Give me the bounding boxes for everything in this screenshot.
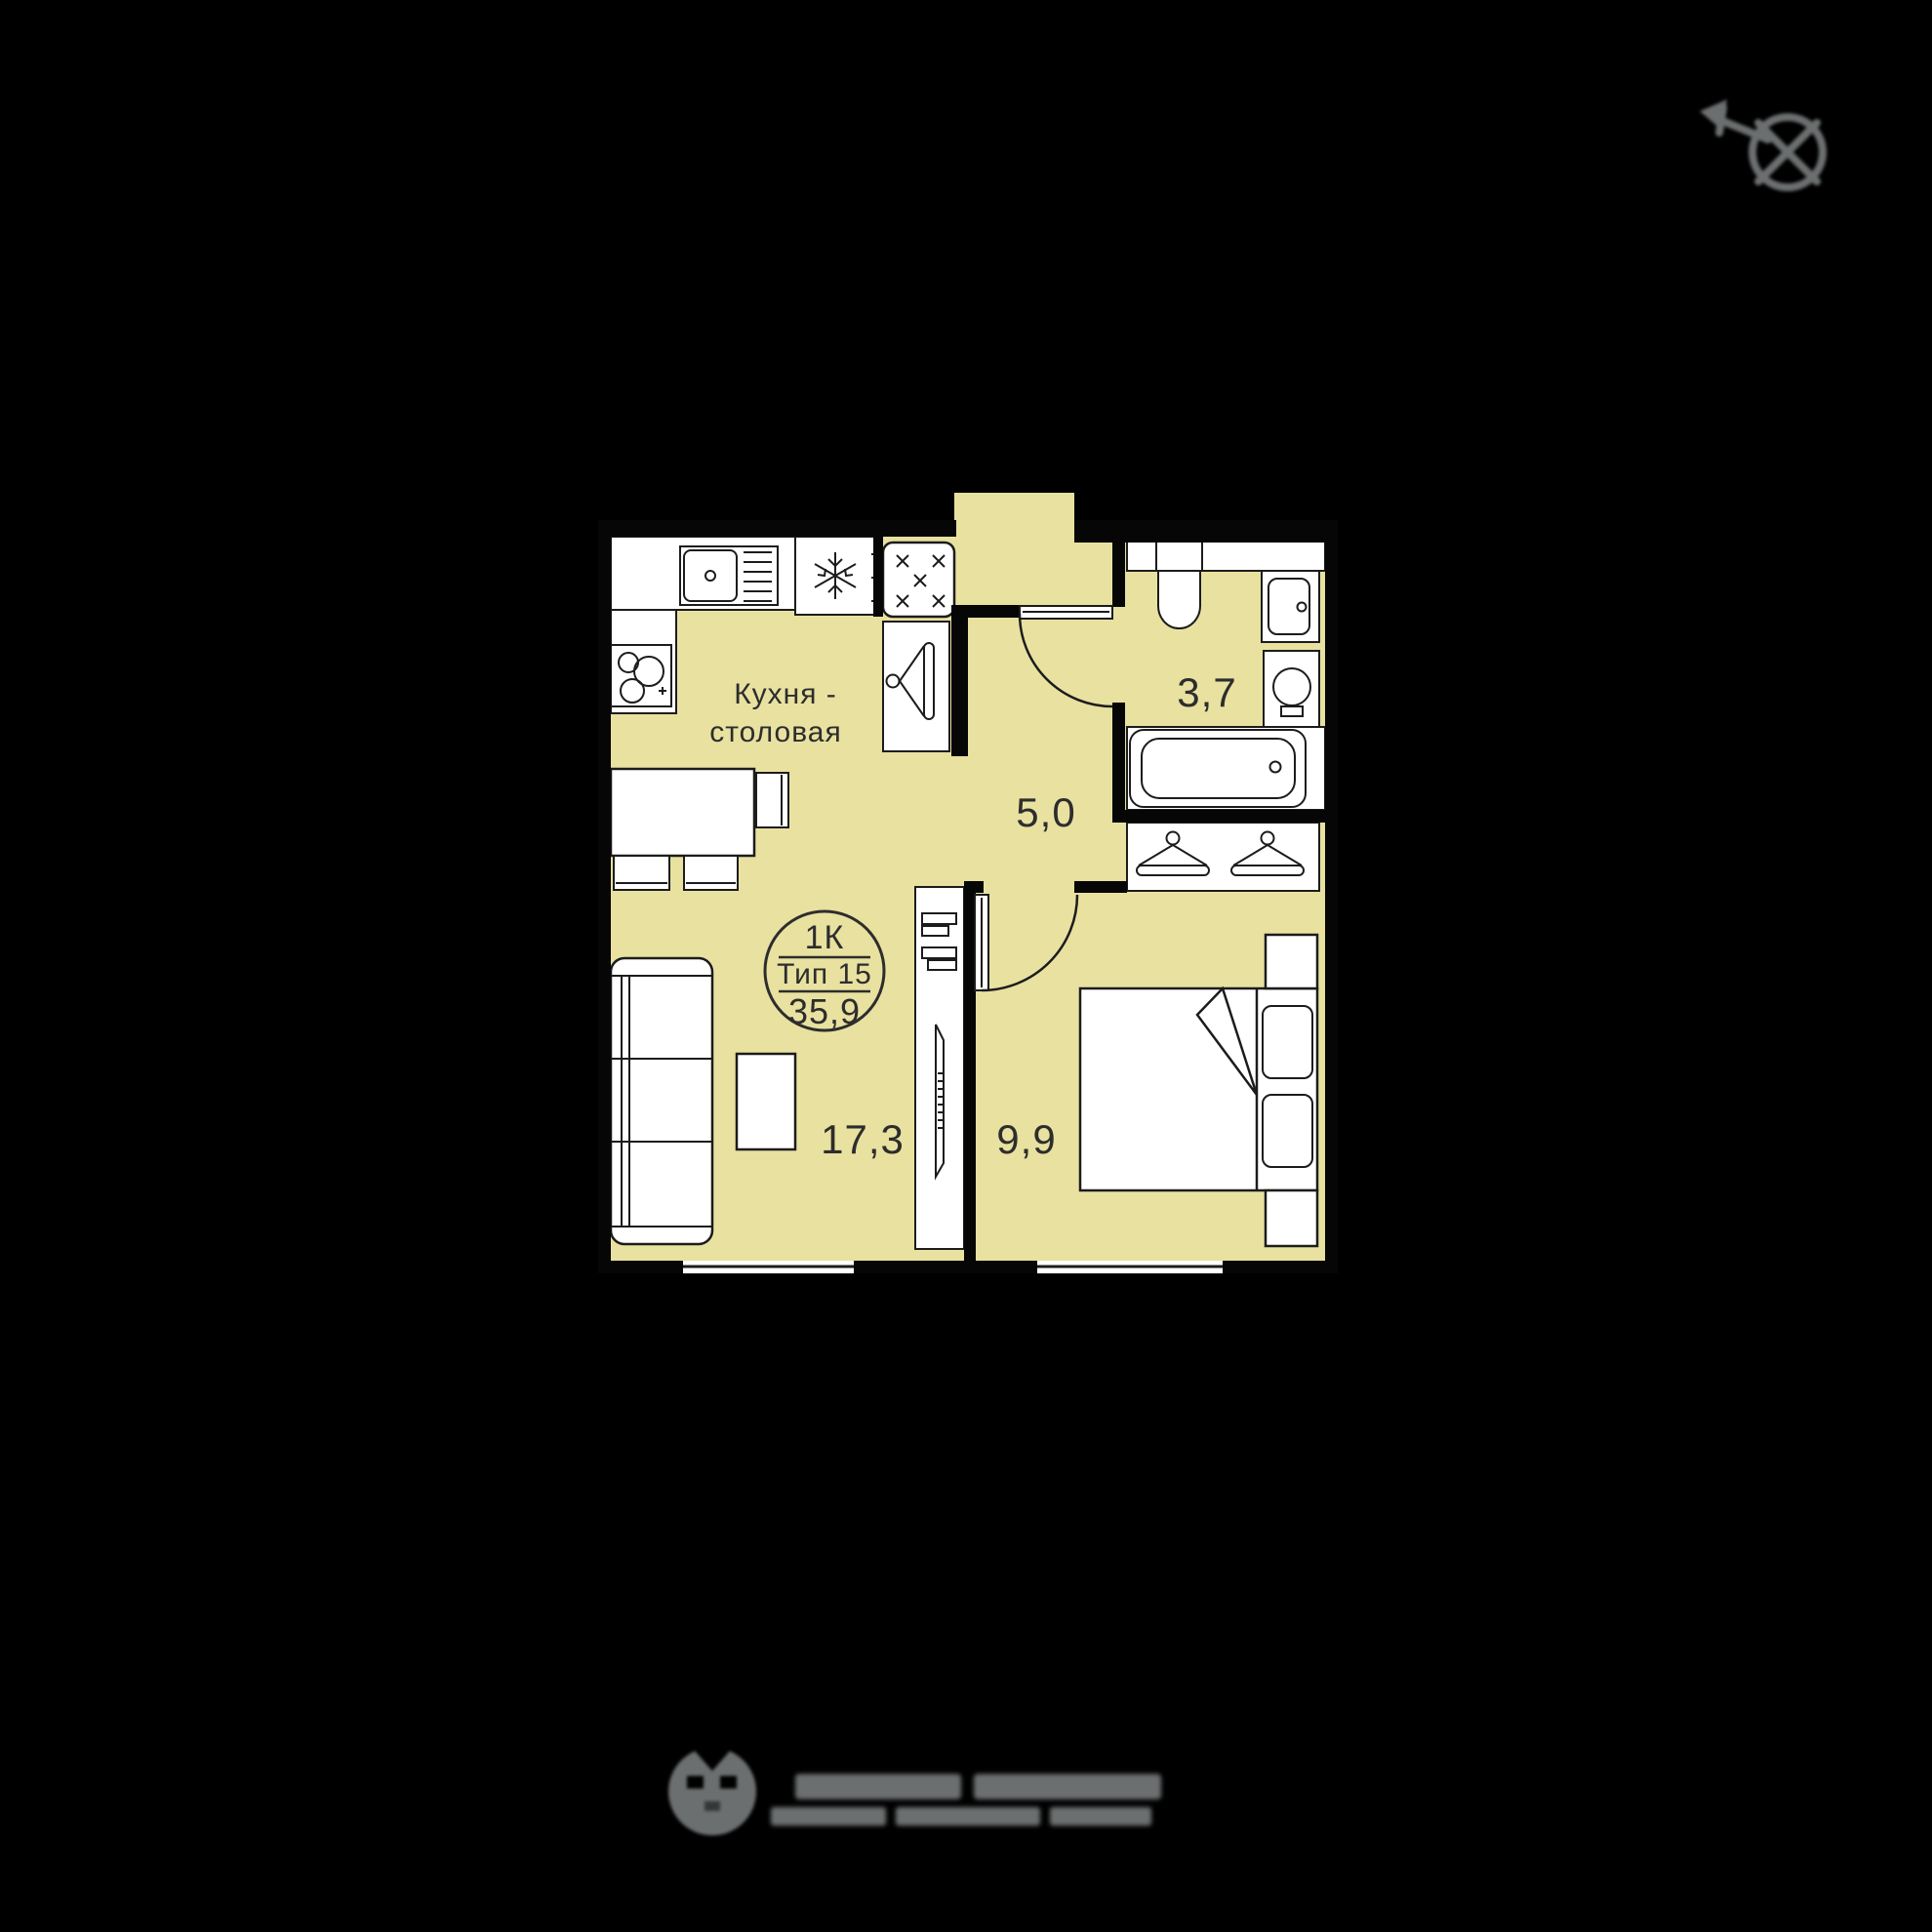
area-label-kitchen: 17,3 — [821, 1116, 905, 1162]
wall-entry — [951, 615, 968, 756]
area-label-bathroom: 3,7 — [1177, 669, 1236, 715]
badge-type: Тип 15 — [777, 958, 872, 990]
nightstand — [1266, 1190, 1317, 1246]
room-label-kitchen-line2: столовая — [709, 716, 842, 748]
wall-partition-stub — [964, 881, 984, 893]
badge-rooms: 1К — [805, 919, 845, 956]
floor-entry — [954, 537, 1110, 610]
wall-top-kitchen — [598, 520, 956, 537]
tv-unit — [915, 887, 964, 1249]
cooktop-icon — [611, 645, 671, 706]
developer-logo-icon — [668, 1748, 756, 1835]
chair — [614, 856, 669, 890]
pillow — [1263, 1006, 1312, 1078]
wall-hall-stub — [951, 605, 1020, 618]
washbasin-icon — [1262, 571, 1319, 642]
wall-left — [598, 520, 611, 1273]
nightstand — [1266, 935, 1317, 988]
washing-machine-icon — [1264, 651, 1319, 727]
window — [1037, 1261, 1223, 1273]
dining-table — [611, 769, 754, 856]
wall-right — [1325, 520, 1338, 1273]
coffee-table — [737, 1054, 795, 1149]
floor-plan: Кухня - столовая 5,0 3,7 17,3 9,9 1К Тип… — [598, 493, 1338, 1273]
chair — [756, 773, 788, 827]
chair — [684, 856, 738, 890]
wall-bedroom-stub — [1074, 881, 1127, 893]
wall-bath-left-upper — [1112, 537, 1125, 607]
unit-type-badge: 1К Тип 15 35,9 — [765, 911, 884, 1031]
wall-bath-left-lower — [1112, 703, 1125, 823]
floor-entry-nook — [954, 493, 1074, 542]
area-label-bedroom: 9,9 — [996, 1116, 1056, 1162]
shelf-icon — [922, 947, 956, 970]
tv-icon — [936, 1025, 944, 1177]
bathtub-icon — [1127, 727, 1325, 810]
stove-icon — [871, 543, 954, 617]
room-label-kitchen-line1: Кухня - — [734, 678, 837, 710]
hall-closet — [883, 622, 949, 751]
screenshot-canvas: Кухня - столовая 5,0 3,7 17,3 9,9 1К Тип… — [0, 0, 1932, 1932]
kitchen-sink-icon — [680, 546, 778, 605]
wall-kitchen-stub — [873, 537, 883, 617]
wall-bath-bottom — [1112, 810, 1338, 823]
badge-total-area: 35,9 — [788, 991, 861, 1031]
wardrobe — [1127, 823, 1319, 891]
window — [683, 1261, 854, 1273]
toilet-icon — [1156, 538, 1202, 628]
fridge-icon — [795, 537, 875, 615]
sofa — [611, 958, 712, 1244]
pillow — [1263, 1095, 1312, 1167]
area-label-hallway: 5,0 — [1016, 789, 1075, 835]
